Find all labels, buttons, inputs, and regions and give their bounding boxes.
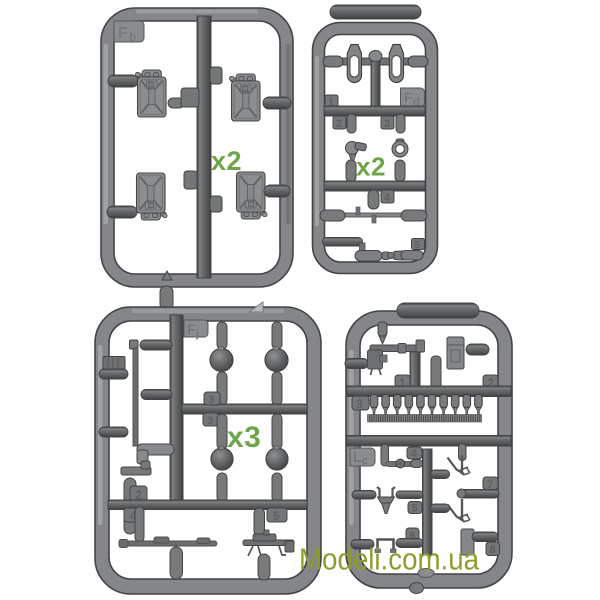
svg-text:3: 3 [384, 118, 390, 130]
svg-text:b: b [129, 30, 136, 44]
svg-text:F: F [187, 321, 196, 337]
svg-text:F: F [118, 25, 128, 42]
svg-text:L: L [353, 449, 362, 465]
svg-text:2: 2 [336, 118, 342, 130]
svg-text:x2: x2 [356, 152, 386, 182]
svg-text:c: c [362, 455, 368, 467]
svg-text:5: 5 [273, 509, 280, 523]
svg-text:x3: x3 [227, 421, 261, 454]
svg-text:3: 3 [207, 415, 213, 427]
svg-text:5: 5 [415, 240, 421, 251]
svg-text:3: 3 [208, 394, 214, 406]
svg-text:3: 3 [356, 397, 363, 411]
svg-text:x2: x2 [211, 146, 242, 176]
svg-text:F: F [404, 89, 413, 105]
svg-text:4: 4 [384, 192, 391, 204]
svg-text:8: 8 [490, 544, 496, 556]
svg-text:j: j [195, 328, 199, 340]
svg-text:Modeli.com.ua: Modeli.com.ua [299, 542, 480, 577]
svg-text:4: 4 [411, 448, 418, 460]
svg-text:5: 5 [412, 503, 418, 515]
